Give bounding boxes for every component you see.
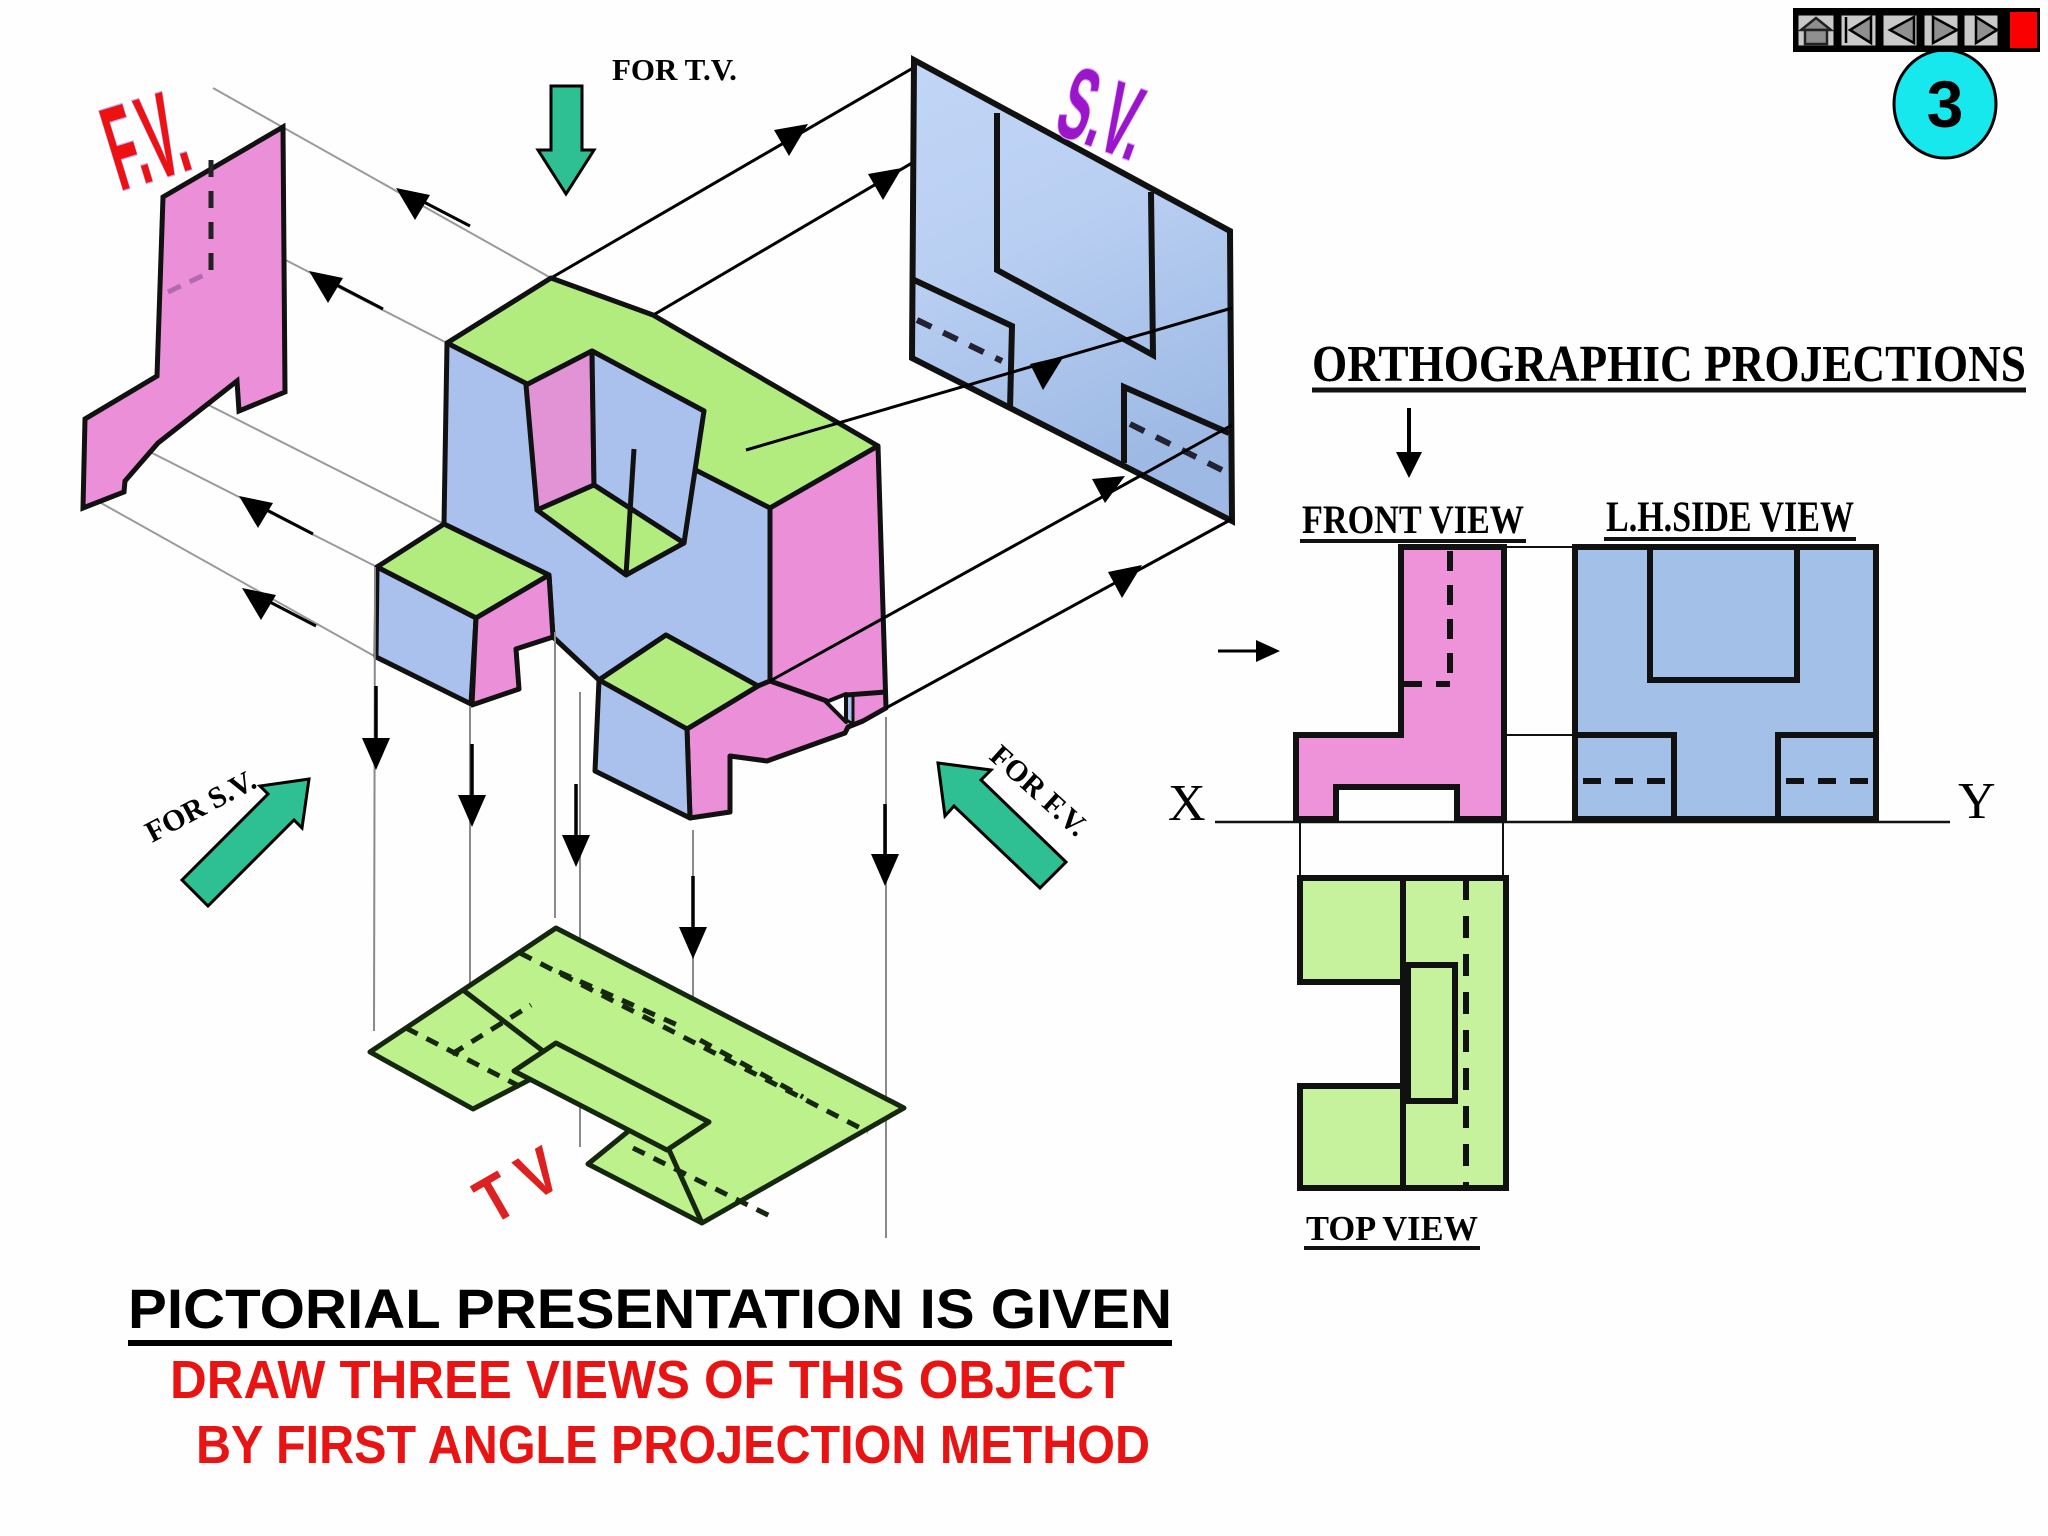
svg-text:TOP VIEW: TOP VIEW [1306,1209,1478,1248]
svg-text:ORTHOGRAPHIC PROJECTIONS: ORTHOGRAPHIC PROJECTIONS [1312,336,2026,393]
svg-text:L.H.SIDE VIEW: L.H.SIDE VIEW [1606,494,1854,541]
svg-text:Y: Y [1958,773,1996,830]
svg-text:FOR T.V.: FOR T.V. [612,52,737,87]
svg-text:X: X [1168,775,1206,832]
svg-text:PICTORIAL PRESENTATION IS GIVE: PICTORIAL PRESENTATION IS GIVEN [128,1277,1172,1340]
svg-text:BY FIRST ANGLE PROJECTION METH: BY FIRST ANGLE PROJECTION METHOD [196,1415,1150,1475]
svg-text:DRAW THREE VIEWS OF THIS OBJEC: DRAW THREE VIEWS OF THIS OBJECT [170,1350,1125,1410]
svg-text:FRONT VIEW: FRONT VIEW [1302,497,1524,542]
svg-text:3: 3 [1927,67,1964,141]
